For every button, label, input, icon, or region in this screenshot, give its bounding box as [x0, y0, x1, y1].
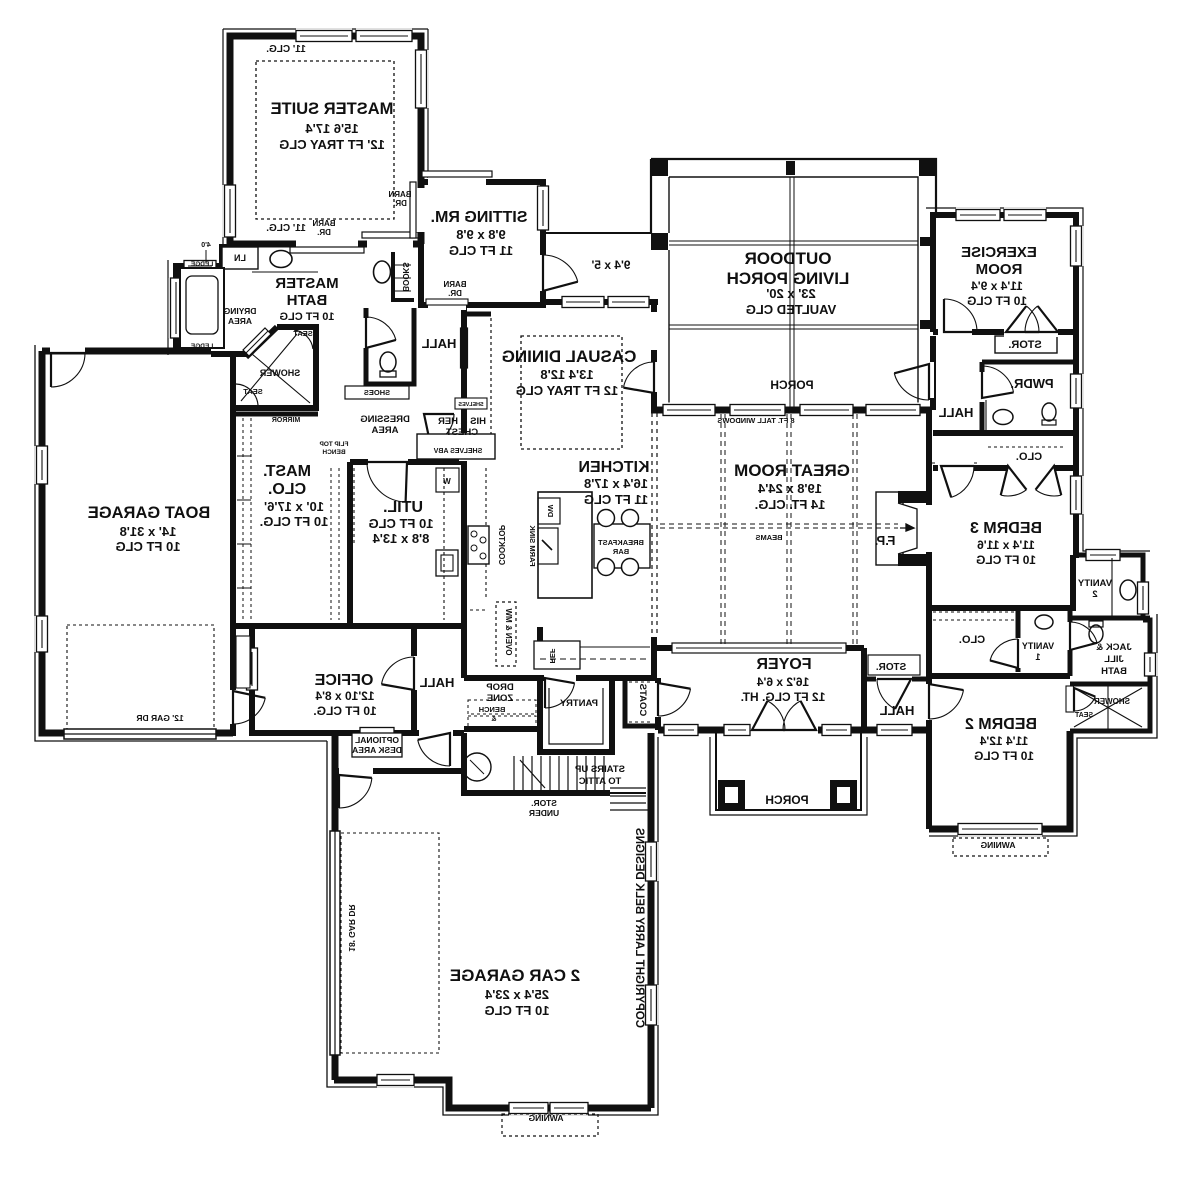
svg-text:UNDER: UNDER: [529, 808, 559, 818]
svg-text:SITTING RM.: SITTING RM.: [431, 209, 528, 226]
svg-text:16'2 x 6'4: 16'2 x 6'4: [756, 675, 809, 689]
svg-text:10 FT CLG: 10 FT CLG: [974, 749, 1034, 763]
svg-text:11' CLG.: 11' CLG.: [266, 44, 306, 55]
svg-text:FOYER: FOYER: [756, 656, 812, 673]
svg-text:LN: LN: [234, 253, 246, 263]
svg-text:KITCHEN: KITCHEN: [578, 459, 649, 476]
svg-text:COOKTOP: COOKTOP: [497, 524, 506, 565]
svg-text:DW: DW: [546, 504, 555, 517]
svg-text:13'4 12'8: 13'4 12'8: [540, 367, 593, 382]
svg-text:HALL: HALL: [420, 675, 455, 690]
svg-text:STOR.: STOR.: [1008, 339, 1041, 351]
svg-text:BENCH: BENCH: [479, 705, 506, 714]
svg-text:23' x 20': 23' x 20': [766, 286, 816, 301]
svg-text:AREA: AREA: [371, 425, 398, 436]
svg-text:PWDR.: PWDR.: [1010, 376, 1053, 391]
svg-text:12'10 x 8'4: 12'10 x 8'4: [315, 689, 374, 703]
svg-text:JILL: JILL: [1104, 654, 1124, 665]
svg-text:10 FT CLG.: 10 FT CLG.: [313, 704, 376, 718]
svg-text:SHOES: SHOES: [364, 388, 390, 397]
svg-text:BATH: BATH: [1101, 666, 1127, 677]
svg-text:CLO.: CLO.: [1016, 451, 1042, 463]
svg-text:OVEN & MW: OVEN & MW: [504, 608, 513, 656]
svg-text:11 FT CLG: 11 FT CLG: [449, 243, 513, 258]
svg-text:ROOM: ROOM: [976, 261, 1023, 278]
svg-text:SEAT: SEAT: [293, 329, 313, 338]
svg-text:11'4 x 9'4: 11'4 x 9'4: [971, 279, 1023, 293]
svg-text:15'6 17'4: 15'6 17'4: [305, 121, 359, 136]
svg-text:AREA: AREA: [228, 316, 252, 326]
svg-text:OPTIONAL: OPTIONAL: [355, 735, 399, 745]
svg-text:LEDGE: LEDGE: [190, 343, 213, 350]
svg-text:HALL: HALL: [880, 703, 915, 718]
svg-text:EXERCISE: EXERCISE: [961, 244, 1037, 261]
svg-text:11'4 12'4: 11'4 12'4: [979, 734, 1028, 748]
svg-text:14 FT. CLG.: 14 FT. CLG.: [755, 497, 826, 512]
svg-text:DR.: DR.: [448, 289, 462, 298]
svg-text:DRESSING: DRESSING: [360, 414, 410, 425]
svg-text:AWNING: AWNING: [980, 840, 1015, 850]
svg-text:DESK AREA: DESK AREA: [352, 745, 402, 755]
svg-text:CLO.: CLO.: [959, 634, 985, 646]
svg-text:TO ATTIC: TO ATTIC: [579, 776, 622, 787]
svg-text:STOR.: STOR.: [876, 662, 907, 673]
svg-text:BENCH: BENCH: [322, 449, 345, 456]
svg-text:AWNING: AWNING: [528, 1113, 563, 1123]
svg-text:14' x 31'8: 14' x 31'8: [120, 524, 177, 539]
svg-text:2 CAR GARAGE: 2 CAR GARAGE: [450, 966, 580, 985]
svg-text:VANITY: VANITY: [1077, 578, 1112, 589]
svg-text:PORCH: PORCH: [765, 793, 808, 807]
svg-text:12 FT CLG. HT.: 12 FT CLG. HT.: [741, 690, 826, 704]
svg-text:BREAKFAST: BREAKFAST: [598, 538, 644, 547]
svg-text:STAIRS UP: STAIRS UP: [574, 764, 625, 775]
svg-text:DR.: DR.: [317, 228, 331, 237]
svg-text:10' x 17'6': 10' x 17'6': [264, 499, 324, 514]
svg-text:DROP: DROP: [486, 682, 514, 693]
svg-text:MAST.: MAST.: [263, 463, 311, 480]
svg-text:SHELVES ABV: SHELVES ABV: [433, 448, 482, 455]
svg-text:11 FT CLG: 11 FT CLG: [584, 492, 648, 507]
svg-text:UTIL.: UTIL.: [383, 499, 423, 516]
svg-text:STOR.: STOR.: [531, 798, 557, 808]
svg-text:8'8 x 13'4: 8'8 x 13'4: [372, 531, 430, 546]
svg-text:10 FT CLG: 10 FT CLG: [484, 1003, 549, 1018]
svg-text:F.P.: F.P.: [875, 533, 896, 548]
svg-text:BARN: BARN: [388, 190, 411, 199]
svg-text:BATH: BATH: [287, 292, 328, 309]
svg-text:BAR: BAR: [612, 547, 629, 556]
svg-text:GREAT ROOM: GREAT ROOM: [734, 461, 850, 480]
svg-text:CHEST: CHEST: [446, 427, 478, 438]
svg-text:OFFICE: OFFICE: [314, 672, 373, 689]
svg-text:MASTER SUITE: MASTER SUITE: [271, 100, 394, 118]
svg-text:SEAT: SEAT: [1074, 712, 1093, 719]
svg-text:12 FT TRAY CLG: 12 FT TRAY CLG: [516, 383, 619, 398]
svg-text:9'8 x 9'8: 9'8 x 9'8: [456, 227, 506, 242]
svg-text:10 FT CLG: 10 FT CLG: [115, 539, 180, 554]
svg-text:COPYRIGHT LARRY BELK DESIGNS: COPYRIGHT LARRY BELK DESIGNS: [633, 828, 645, 1028]
svg-text:JACK &: JACK &: [1096, 642, 1132, 653]
svg-text:BARN: BARN: [443, 280, 466, 289]
svg-text:BARN: BARN: [312, 219, 335, 228]
svg-text:10 FT CLG.: 10 FT CLG.: [260, 514, 329, 529]
svg-text:OUTDOOR: OUTDOOR: [745, 249, 832, 268]
svg-text:11'4 x 11'6: 11'4 x 11'6: [977, 538, 1035, 552]
svg-text:PORCH: PORCH: [770, 378, 813, 392]
svg-text:12' GAR DR: 12' GAR DR: [136, 713, 183, 723]
svg-text:11' CLG.: 11' CLG.: [266, 223, 306, 234]
svg-text:SHELVES: SHELVES: [458, 402, 484, 408]
svg-text:BEDRM 2: BEDRM 2: [965, 716, 1037, 733]
svg-text:VANITY: VANITY: [1022, 641, 1054, 651]
svg-text:HALL: HALL: [939, 405, 974, 420]
svg-text:CASUAL DINING: CASUAL DINING: [502, 347, 637, 366]
svg-text:MIRROR: MIRROR: [272, 417, 300, 424]
svg-text:BEAMS: BEAMS: [755, 533, 782, 542]
svg-text:19'8 x 24'4: 19'8 x 24'4: [757, 481, 822, 496]
svg-text:9'4 x 5': 9'4 x 5': [591, 258, 630, 272]
svg-text:&: &: [491, 716, 496, 723]
svg-text:FLIP TOP: FLIP TOP: [319, 441, 349, 448]
svg-text:SHOWER: SHOWER: [1094, 697, 1130, 706]
svg-text:16'4 x 17'8: 16'4 x 17'8: [584, 476, 648, 491]
svg-text:12' FT TRAY CLG: 12' FT TRAY CLG: [279, 137, 385, 152]
svg-text:FARM SINK: FARM SINK: [528, 525, 537, 567]
svg-text:BEDRM 3: BEDRM 3: [970, 520, 1042, 537]
svg-text:4'0: 4'0: [201, 242, 211, 249]
svg-text:PANTRY: PANTRY: [559, 698, 598, 709]
svg-text:CUBES: CUBES: [484, 724, 510, 733]
svg-text:25'4 x 23'4: 25'4 x 23'4: [484, 987, 549, 1002]
svg-text:HALL: HALL: [422, 336, 457, 351]
svg-text:VAULTED CLG: VAULTED CLG: [746, 302, 837, 317]
svg-text:18' GAR DR: 18' GAR DR: [347, 904, 357, 951]
svg-text:LEDGE: LEDGE: [190, 261, 213, 268]
svg-text:8 FT. TALL WINDOWS: 8 FT. TALL WINDOWS: [717, 416, 794, 425]
svg-text:SEAT: SEAT: [243, 387, 263, 396]
svg-text:SHOWER: SHOWER: [259, 368, 300, 378]
svg-text:CLO.: CLO.: [268, 481, 306, 498]
svg-text:DRYING: DRYING: [223, 306, 256, 316]
svg-text:BOAT GARAGE: BOAT GARAGE: [88, 504, 211, 522]
svg-text:BOOKS: BOOKS: [401, 262, 410, 292]
svg-text:10 FT CLG: 10 FT CLG: [967, 294, 1027, 308]
svg-text:10 FT CLG: 10 FT CLG: [279, 311, 334, 323]
svg-text:COATS: COATS: [637, 684, 648, 717]
svg-text:10 FT CLG: 10 FT CLG: [976, 553, 1036, 567]
svg-text:ZONE: ZONE: [487, 693, 513, 704]
svg-text:2: 2: [1092, 589, 1097, 600]
svg-text:REF: REF: [548, 648, 557, 663]
svg-text:HIS & HER: HIS & HER: [438, 416, 486, 427]
svg-text:10 FT CLG: 10 FT CLG: [368, 516, 433, 531]
svg-text:1: 1: [1035, 652, 1040, 662]
svg-text:DR.: DR.: [393, 199, 407, 208]
svg-text:MASTER: MASTER: [275, 275, 339, 292]
